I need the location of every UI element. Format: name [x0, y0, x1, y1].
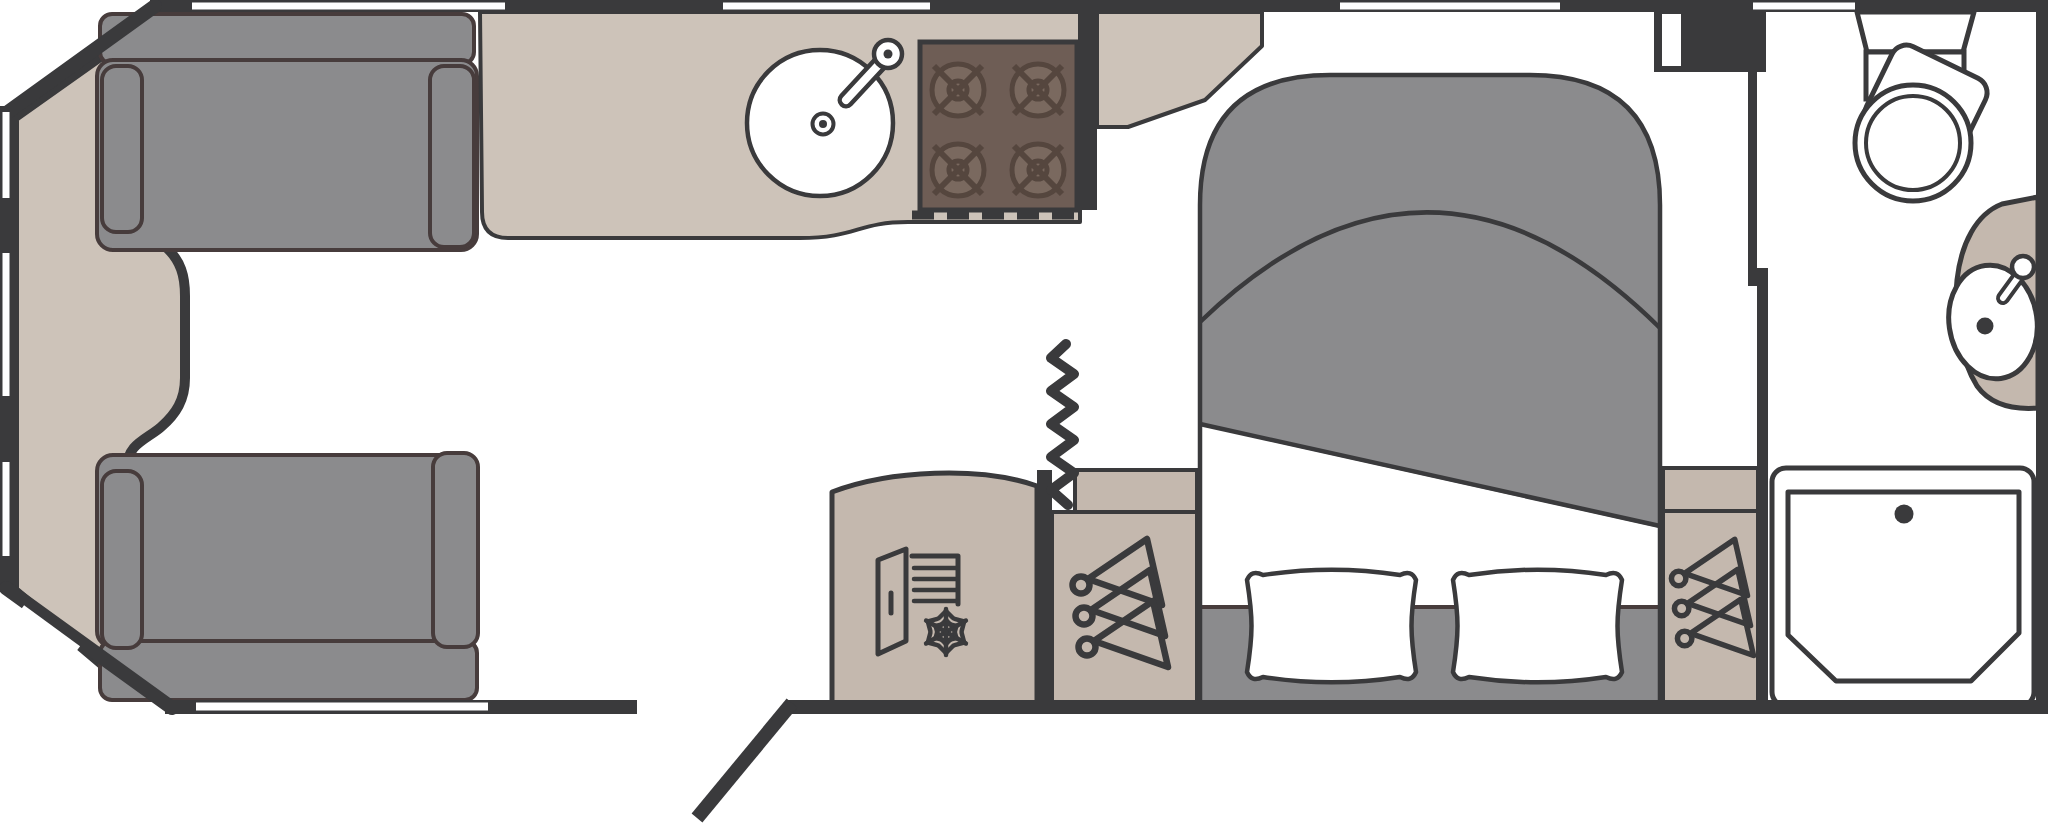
wardrobe-shelf	[1075, 470, 1197, 512]
window	[196, 703, 488, 711]
burner-icon	[932, 64, 984, 116]
window	[3, 253, 10, 396]
wardrobe-body	[1052, 512, 1197, 702]
wardrobe-shelf	[1663, 468, 1758, 511]
window	[723, 3, 930, 10]
window	[3, 112, 10, 198]
basin-drain-icon	[1977, 318, 1994, 335]
front-sofa-nearside	[97, 453, 478, 700]
burner-icon	[1012, 64, 1064, 116]
shower-tray-icon	[1772, 468, 2034, 706]
sofa-armrest	[102, 471, 142, 648]
rear-wall	[2036, 0, 2048, 714]
sofa-armrest	[430, 66, 474, 247]
window	[1753, 3, 1855, 10]
bottom-wall-right	[788, 700, 2048, 714]
pillow-left	[1247, 570, 1416, 683]
front-sofa-offside	[97, 14, 477, 250]
sofa-backrest	[100, 14, 474, 64]
burner-icon	[1012, 144, 1064, 196]
window	[192, 3, 505, 10]
shower-drain-icon	[1895, 505, 1914, 524]
caravan-floorplan-page	[0, 0, 2048, 827]
island-bed	[1200, 75, 1660, 702]
sofa-seat	[97, 455, 477, 647]
sofa-armrest	[102, 66, 142, 232]
sofa-armrest	[433, 453, 478, 647]
window	[1340, 3, 1560, 10]
burner-icon	[932, 144, 984, 196]
kitchen-end-wall	[1080, 12, 1097, 210]
wardrobe-partition-wall	[1037, 470, 1052, 705]
wardrobe-right	[1663, 468, 1758, 702]
bedroom-partition-wall	[1757, 268, 1768, 705]
fridge-freezer	[832, 473, 1037, 705]
floorplan-canvas	[0, 0, 2048, 827]
washroom-door-leaf[interactable]	[1662, 14, 1681, 66]
pillow-right	[1453, 570, 1622, 683]
sofa-seat	[97, 60, 477, 250]
window	[3, 462, 10, 556]
wardrobe-left	[1052, 470, 1197, 702]
bedroom-partition-wall	[1748, 70, 1757, 286]
